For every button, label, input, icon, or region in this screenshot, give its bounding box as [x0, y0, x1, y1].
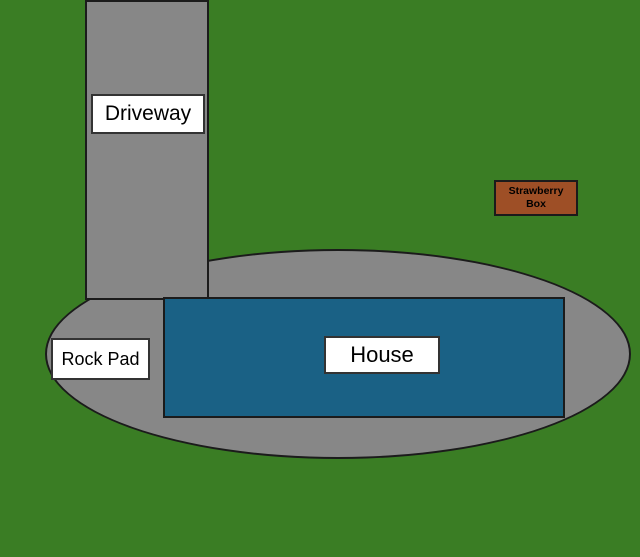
driveway-label-text: Driveway: [105, 102, 191, 126]
strawberry-box-label-line1: Strawberry: [509, 185, 564, 198]
rock-pad-label-text: Rock Pad: [61, 349, 139, 370]
driveway-label: Driveway: [91, 94, 205, 134]
house-label: House: [324, 336, 440, 374]
driveway-shape: [85, 0, 209, 300]
strawberry-box-shape: Strawberry Box: [494, 180, 578, 216]
rock-pad-label: Rock Pad: [51, 338, 150, 380]
yard-diagram-canvas: Strawberry Box Driveway Rock Pad House: [0, 0, 640, 557]
strawberry-box-label-line2: Box: [526, 198, 546, 211]
house-label-text: House: [350, 342, 414, 368]
